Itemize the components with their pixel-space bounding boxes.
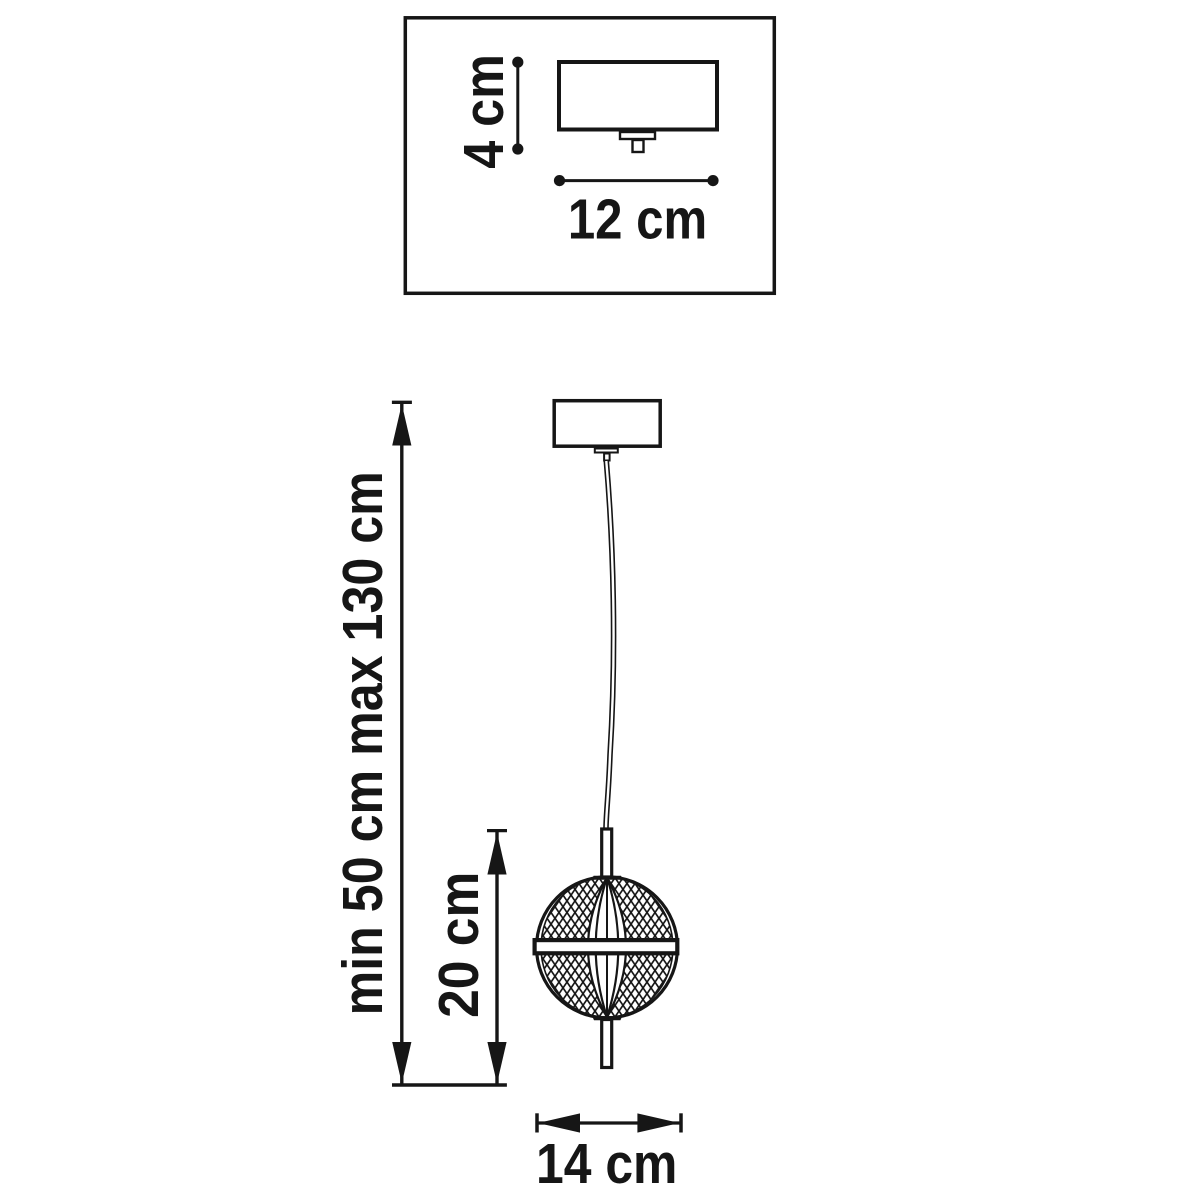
svg-text:min 50 cm max 130 cm: min 50 cm max 130 cm: [331, 471, 395, 1015]
svg-text:20 cm: 20 cm: [427, 872, 491, 1018]
svg-text:12 cm: 12 cm: [568, 188, 707, 251]
svg-text:14 cm: 14 cm: [536, 1133, 677, 1196]
svg-text:4 cm: 4 cm: [452, 54, 516, 169]
